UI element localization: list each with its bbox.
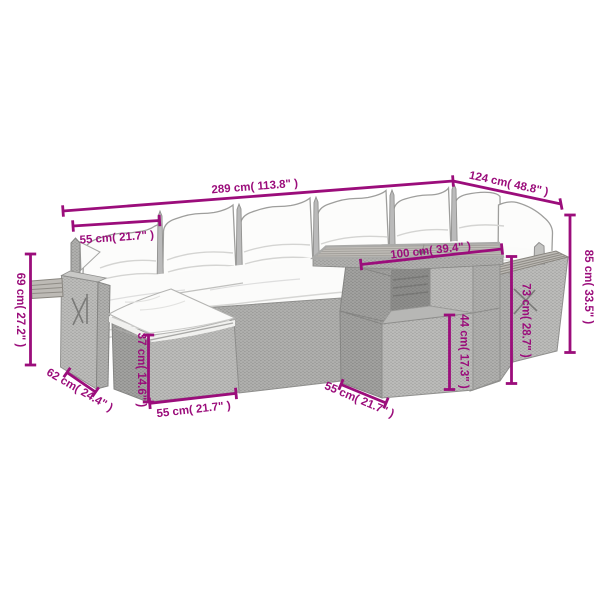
- svg-text:37 cm( 14.6" ): 37 cm( 14.6" ): [135, 333, 147, 408]
- svg-text:69 cm( 27.2" ): 69 cm( 27.2" ): [14, 273, 26, 348]
- svg-text:85 cm( 33.5" ): 85 cm( 33.5" ): [582, 250, 594, 325]
- svg-text:44 cm( 17.3" ): 44 cm( 17.3" ): [458, 314, 470, 389]
- svg-text:73 cm( 28.7" ): 73 cm( 28.7" ): [520, 283, 532, 358]
